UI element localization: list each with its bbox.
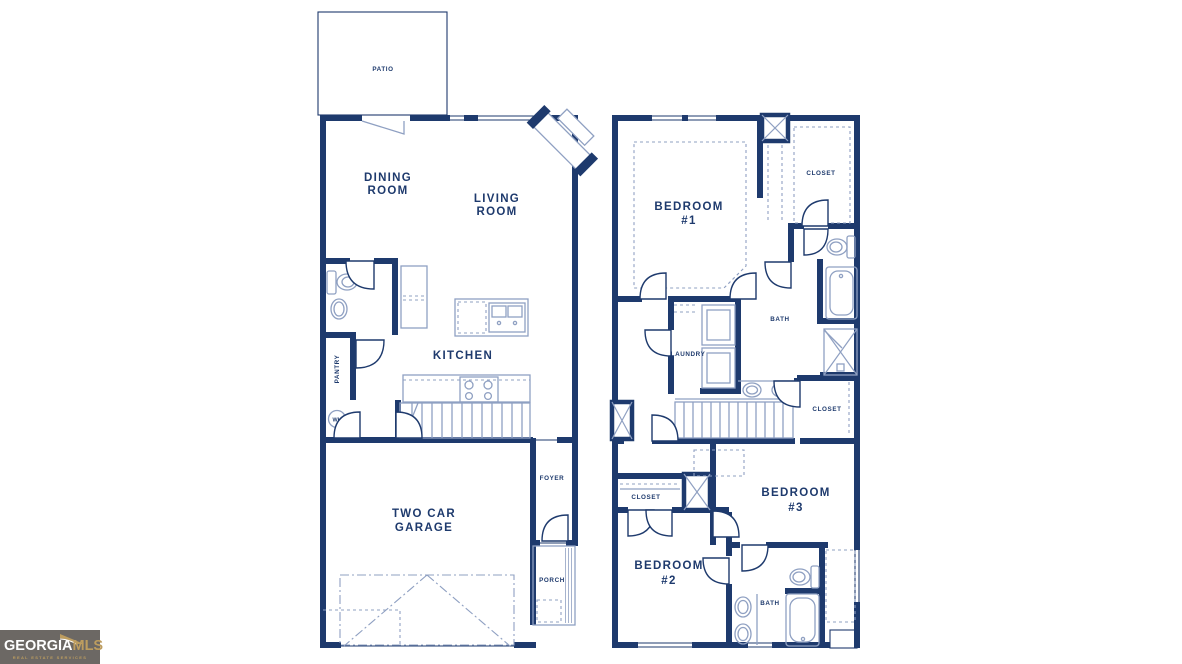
garage-door-marks [323, 575, 514, 646]
kitchen-label: KITCHEN [433, 350, 493, 362]
closet-mid-label: CLOSET [812, 406, 841, 413]
garage-label-2: GARAGE [395, 522, 453, 534]
patio-door-leaf [362, 121, 404, 134]
stairs-second-floor [675, 399, 793, 476]
logo-text-mls: MLS [72, 638, 103, 654]
logo-wordmark: GEORGIAMLS [4, 639, 96, 653]
first-floor-plan: PATIO [318, 12, 607, 648]
living-room-label-1: LIVING [474, 193, 520, 205]
closet-lower-label: CLOSET [631, 494, 660, 501]
kitchen-counter [403, 375, 530, 402]
main-tub-fixture [826, 267, 857, 319]
bath2-sinks-fixture [735, 594, 757, 645]
patio-label: PATIO [372, 66, 393, 73]
washer-dryer-fixture [674, 305, 735, 388]
bath2-tub-fixture [786, 594, 819, 646]
bedroom2-label-1: BEDROOM [634, 560, 703, 572]
first-floor-walls [320, 115, 578, 648]
bedroom1-label-2: #1 [681, 215, 696, 227]
dining-room-label-1: DINING [364, 172, 412, 184]
chase-box-mid [684, 474, 710, 510]
floor-plan-canvas: PATIO [0, 0, 1182, 664]
georgia-mls-logo: GEORGIAMLS REAL ESTATE SERVICES [0, 630, 100, 664]
bedroom1-label-1: BEDROOM [654, 201, 723, 213]
powder-sink-fixture [331, 299, 347, 319]
bedroom3-label-1: BEDROOM [761, 487, 830, 499]
laundry-label: LAUNDRY [671, 351, 706, 358]
chase-box-top [762, 115, 788, 141]
porch [533, 546, 575, 625]
garage-label-1: TWO CAR [392, 508, 456, 520]
fireplace [527, 96, 608, 177]
shower-fixture [824, 329, 857, 375]
bath-main-label: BATH [770, 316, 789, 323]
bath2-label: BATH [760, 600, 779, 607]
second-floor-plan: BEDROOM #1 CLOSET BATH LAUNDRY CLOSET CL… [612, 115, 859, 648]
logo-tagline: REAL ESTATE SERVICES [4, 655, 96, 660]
closet-top-label: CLOSET [806, 170, 835, 177]
pantry-label: PANTRY [334, 354, 341, 383]
bath2-toilet-fixture [790, 566, 819, 588]
foyer-label: FOYER [540, 475, 565, 482]
rear-step-outline [830, 630, 857, 648]
main-toilet-fixture [827, 236, 855, 258]
chase-box-left [612, 402, 632, 439]
kitchen-island [455, 299, 528, 336]
bedroom3-nook-outline [826, 550, 855, 622]
closet-lower-shelving [620, 484, 680, 489]
hall-cabinet [401, 266, 427, 328]
logo-text-georgia: GEORGIA [4, 638, 72, 654]
bedroom2-label-2: #2 [661, 575, 676, 587]
living-room-label-2: ROOM [477, 206, 518, 218]
porch-label: PORCH [539, 577, 565, 584]
patio-outline [318, 12, 447, 115]
bedroom3-label-2: #3 [788, 502, 803, 514]
dining-room-label-2: ROOM [368, 185, 409, 197]
